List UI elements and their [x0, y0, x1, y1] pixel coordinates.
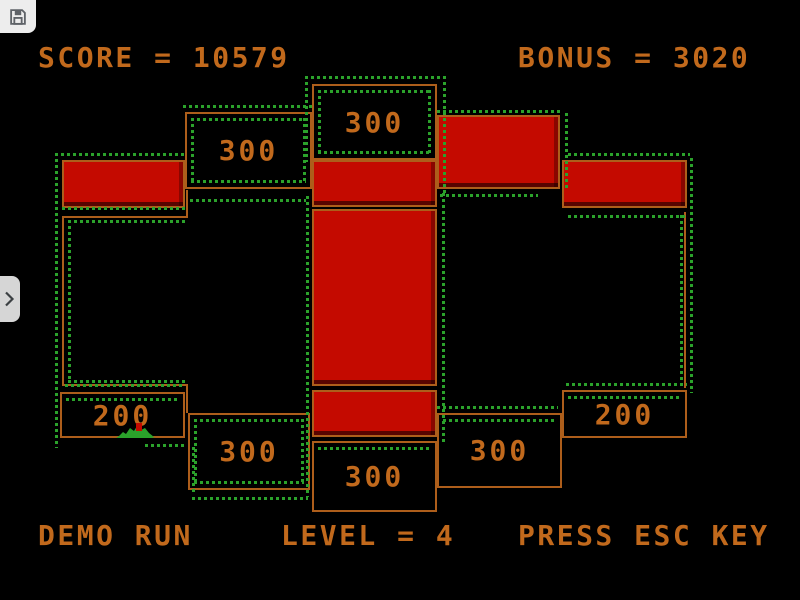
- trail-inset: [428, 90, 431, 154]
- bonus-display: BONUS = 3020: [518, 46, 750, 70]
- trail-inset: [568, 396, 681, 399]
- trail-segment: [55, 153, 58, 448]
- trail-inset: [318, 90, 321, 154]
- region-outline-left-bottom-connector: [186, 386, 188, 413]
- red-block-center-lower-bar: [312, 390, 437, 437]
- trail-segment: [680, 215, 683, 385]
- trail-segment: [568, 153, 690, 156]
- trail-segment: [183, 105, 313, 108]
- demo-run-label: DEMO RUN: [38, 524, 193, 548]
- trail-segment: [442, 193, 445, 442]
- trail-inset: [318, 90, 431, 93]
- trail-segment: [192, 497, 308, 500]
- trail-segment: [690, 158, 693, 393]
- red-block-center-column: [312, 209, 437, 386]
- trail-segment: [566, 383, 687, 386]
- trail-segment: [306, 196, 309, 497]
- floppy-disk-icon: [7, 6, 29, 28]
- trail-inset: [191, 180, 306, 183]
- trail-segment: [68, 220, 186, 223]
- trail-inset: [301, 419, 304, 484]
- trail-segment: [437, 406, 558, 409]
- score-box-value: 300: [219, 435, 279, 468]
- trail-inset: [191, 118, 194, 183]
- score-box-bottom-center: 300: [312, 441, 437, 512]
- score-box-value: 300: [345, 460, 405, 493]
- score-box-top-center: 300: [312, 84, 437, 160]
- trail-segment: [565, 113, 568, 188]
- score-display: SCORE = 10579: [38, 46, 290, 70]
- red-block-right-bar: [562, 160, 687, 208]
- score-box-value: 300: [345, 106, 405, 139]
- trail-segment: [440, 194, 538, 197]
- trail-segment: [443, 76, 446, 194]
- trail-segment: [68, 220, 71, 382]
- score-box-value: 300: [219, 134, 279, 167]
- trail-inset: [194, 481, 304, 484]
- trail-segment: [145, 444, 187, 447]
- save-button[interactable]: [0, 0, 36, 33]
- trail-segment: [68, 380, 186, 383]
- score-box-bottom-right: 300: [437, 413, 562, 488]
- region-outline-left-top-connector: [186, 190, 188, 216]
- trail-inset: [443, 419, 556, 422]
- region-outline-left-region: [62, 216, 188, 386]
- score-box-value: 200: [595, 398, 655, 431]
- trail-inset: [318, 447, 431, 450]
- press-esc-label: PRESS ESC KEY: [518, 524, 770, 548]
- player-creature: [116, 422, 156, 443]
- trail-segment: [305, 76, 445, 79]
- region-outline-right-region: [560, 212, 686, 388]
- level-display: LEVEL = 4: [281, 524, 455, 548]
- trail-inset: [66, 398, 179, 401]
- trail-inset: [191, 118, 306, 121]
- trail-segment: [305, 76, 308, 162]
- trail-segment: [62, 207, 188, 210]
- chevron-right-icon: [3, 290, 15, 308]
- trail-inset: [318, 151, 431, 154]
- trail-segment: [190, 199, 306, 202]
- red-block-top-right: [437, 115, 560, 189]
- trail-segment: [65, 384, 183, 387]
- game-screen: SCORE = 10579 BONUS = 3020 DEMO RUN LEVE…: [0, 0, 800, 600]
- sidebar-toggle-button[interactable]: [0, 276, 20, 322]
- trail-segment: [55, 153, 187, 156]
- trail-segment: [437, 110, 563, 113]
- trail-inset: [194, 419, 304, 422]
- score-box-right: 200: [562, 390, 687, 438]
- score-box-bottom-left: 300: [188, 413, 310, 490]
- red-block-left-bar: [62, 160, 185, 208]
- trail-segment: [192, 447, 195, 495]
- score-box-top-left: 300: [185, 112, 312, 189]
- trail-segment: [568, 215, 688, 218]
- score-box-value: 300: [470, 434, 530, 467]
- red-block-center-bar: [312, 160, 437, 207]
